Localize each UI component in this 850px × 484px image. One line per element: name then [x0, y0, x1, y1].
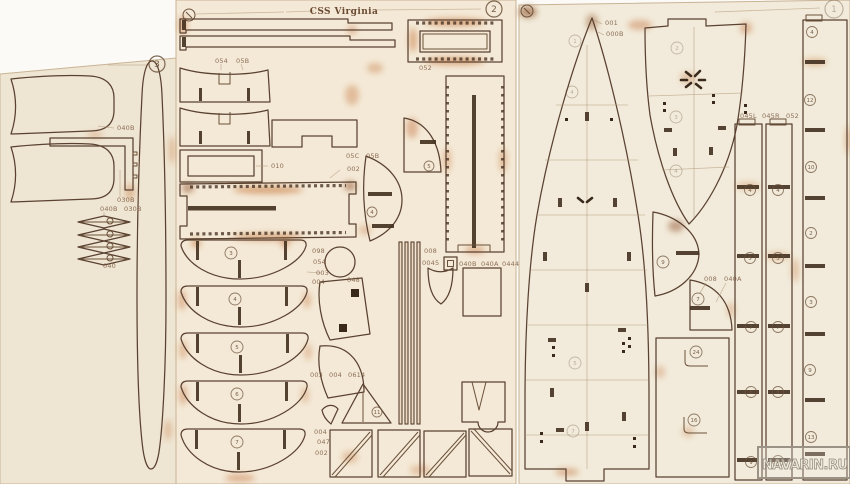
part-label: 004 — [314, 428, 327, 436]
svg-text:12: 12 — [807, 98, 814, 104]
watermark-text: NAVARIN.RU — [762, 458, 848, 473]
part-label: 008 — [704, 275, 717, 283]
part-label: 045L — [740, 112, 757, 120]
svg-text:1: 1 — [831, 5, 837, 15]
part-label: 040 — [103, 262, 116, 270]
svg-text:3: 3 — [809, 300, 813, 306]
part-label: 040A — [724, 275, 742, 283]
plywood-sheets — [0, 0, 850, 484]
part-label: 052 — [419, 64, 432, 72]
svg-text:1: 1 — [573, 39, 577, 45]
part-label: 0444 — [502, 260, 519, 268]
kit-sheets-graphic: CSS Virginia 040B030B040B030B04005405B05… — [0, 0, 850, 484]
part-label: 030B — [117, 196, 135, 204]
sheet-right — [519, 0, 850, 484]
part-label: 05B — [236, 57, 249, 65]
part-label: 004 — [312, 278, 325, 286]
svg-text:4: 4 — [370, 210, 374, 216]
svg-text:8: 8 — [776, 390, 780, 396]
svg-text:8: 8 — [749, 390, 753, 396]
part-label: 052 — [786, 112, 799, 120]
svg-text:7: 7 — [235, 440, 239, 446]
svg-text:9: 9 — [808, 368, 812, 374]
part-label: 002 — [315, 449, 328, 457]
svg-text:2: 2 — [809, 231, 813, 237]
svg-text:7: 7 — [571, 429, 575, 435]
svg-text:4: 4 — [570, 90, 574, 96]
watermark: NAVARIN.RU — [758, 447, 850, 478]
part-label: 098 — [312, 247, 325, 255]
svg-text:9: 9 — [661, 260, 665, 266]
part-label: 05C — [346, 152, 360, 160]
svg-text:13: 13 — [808, 435, 815, 441]
photo-of-laser-cut-kit-sheets: CSS Virginia 040B030B040B030B04005405B05… — [0, 0, 850, 484]
part-label: 040A — [481, 260, 499, 268]
part-label: 010 — [271, 162, 284, 170]
svg-text:3: 3 — [674, 115, 678, 121]
svg-text:7: 7 — [696, 297, 700, 303]
svg-text:5: 5 — [427, 164, 431, 170]
part-label: 000B — [606, 30, 624, 38]
part-label: 05B — [366, 152, 379, 160]
svg-text:4: 4 — [810, 30, 814, 36]
part-label: 040B — [100, 205, 118, 213]
svg-text:11: 11 — [374, 410, 381, 416]
svg-text:3: 3 — [229, 251, 233, 257]
svg-text:7: 7 — [749, 325, 753, 331]
part-label: 003 — [316, 269, 329, 277]
svg-text:2: 2 — [491, 5, 497, 15]
part-label: 047 — [317, 438, 330, 446]
part-label: 045R — [762, 112, 780, 120]
part-label: 054 — [215, 57, 228, 65]
part-label: 048 — [347, 276, 360, 284]
part-label: 002 — [347, 165, 360, 173]
svg-text:4: 4 — [674, 169, 678, 175]
sheet-left — [0, 58, 176, 484]
svg-text:5: 5 — [235, 345, 239, 351]
svg-text:2: 2 — [675, 46, 679, 52]
svg-text:4: 4 — [748, 188, 752, 194]
svg-text:5: 5 — [573, 361, 577, 367]
part-label: 003 — [310, 371, 323, 379]
part-label: 0614 — [348, 371, 365, 379]
svg-text:4: 4 — [776, 188, 780, 194]
svg-text:9: 9 — [749, 460, 753, 466]
part-label: 040B — [117, 124, 135, 132]
sheet-middle — [176, 0, 516, 484]
svg-text:5: 5 — [748, 256, 752, 262]
svg-text:7: 7 — [776, 325, 780, 331]
part-label: 008 — [424, 247, 437, 255]
part-label: 054 — [313, 258, 326, 266]
kit-title: CSS Virginia — [310, 7, 378, 17]
part-label: 0045 — [422, 259, 439, 267]
svg-text:4: 4 — [233, 297, 237, 303]
svg-text:3: 3 — [154, 60, 160, 70]
svg-text:24: 24 — [693, 350, 700, 356]
part-label: 001 — [605, 19, 618, 27]
part-label: 030B — [124, 205, 142, 213]
svg-text:6: 6 — [235, 392, 239, 398]
svg-text:10: 10 — [808, 165, 815, 171]
svg-text:16: 16 — [691, 418, 698, 424]
svg-text:5: 5 — [776, 256, 780, 262]
part-label: 004 — [329, 371, 342, 379]
part-label: 040B — [459, 260, 477, 268]
